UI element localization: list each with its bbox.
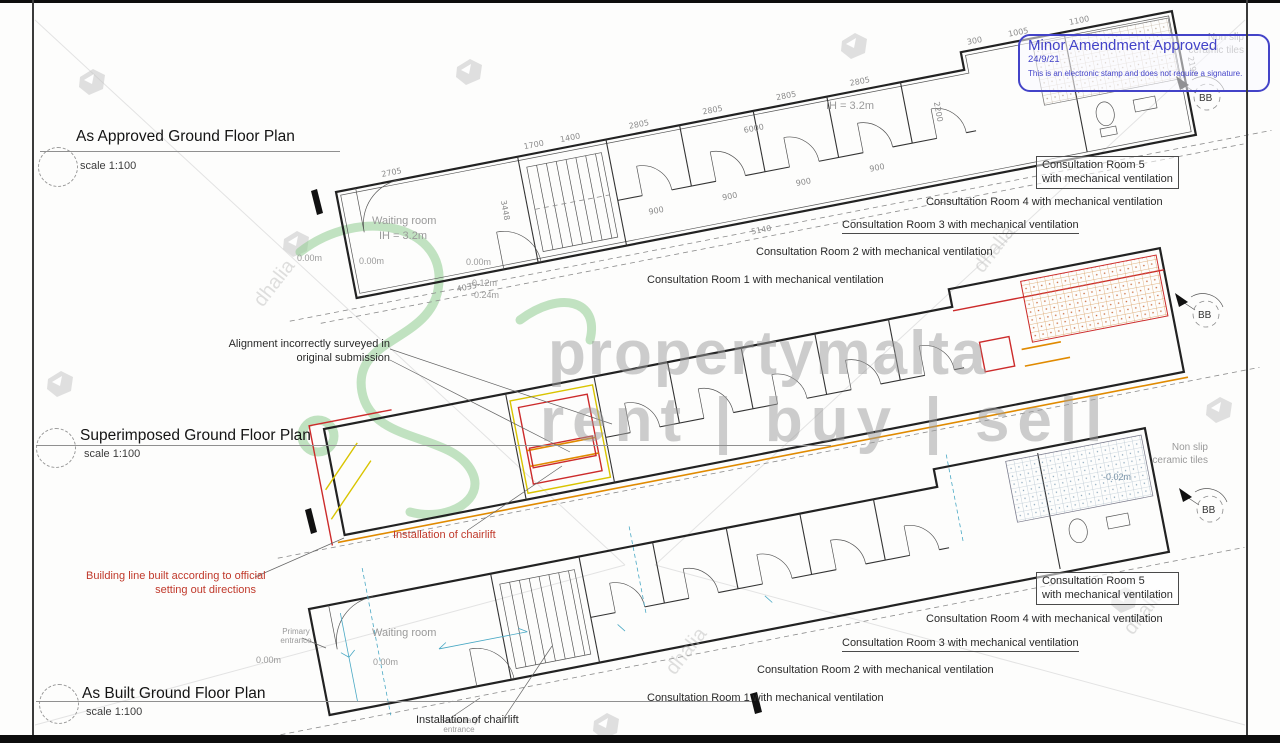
watermark-brand: propertymalta [548, 318, 987, 389]
room4-label-bottom: Consultation Room 4 with mechanical vent… [926, 612, 1163, 626]
building-line-note: Building line built according to officia… [86, 569, 256, 598]
section-label: BB [1202, 505, 1216, 516]
section-label: BB [1198, 310, 1212, 321]
level-label: 0.00m [359, 256, 384, 268]
section-label: BB [1199, 93, 1213, 104]
frame-left [32, 0, 34, 735]
superimposed-plan-title: Superimposed Ground Floor Plan [80, 426, 311, 446]
room5-label-bottom: Consultation Room 5 with mechanical vent… [1036, 572, 1179, 605]
level-label: 0.00m [466, 257, 491, 269]
frame-right [1246, 0, 1248, 735]
level-label: -0.12m [469, 278, 497, 290]
room5-label-top: Consultation Room 5 with mechanical vent… [1036, 156, 1179, 189]
room2-label-bottom: Consultation Room 2 with mechanical vent… [757, 663, 994, 677]
nonslip-line2: ceramic tiles [1118, 454, 1208, 467]
room5-line1: Consultation Room 5 [1042, 574, 1173, 588]
level-label: 0.00m [373, 657, 398, 669]
approved-plan-scale: scale 1:100 [80, 159, 136, 173]
room3-label-bottom: Consultation Room 3 with mechanical vent… [842, 636, 1079, 652]
level-label: 0.00m [256, 655, 281, 667]
superimposed-plan-scale: scale 1:100 [84, 447, 140, 461]
chairlift-note-superimposed: Installation of chairlift [393, 528, 496, 542]
alignment-note: Alignment incorrectly surveyed in origin… [200, 337, 390, 366]
primary-line1: Primary [274, 627, 318, 636]
title-marker-circle [38, 147, 78, 187]
title-marker-circle [39, 684, 79, 724]
as-built-plan-scale: scale 1:100 [86, 705, 142, 719]
primary-line2: entrance [274, 636, 318, 645]
section-marker-bb-bottom: BB [1179, 488, 1227, 522]
nonslip-line1: Non slip [1118, 441, 1208, 454]
chairlift-note-as-built: Installation of chairlift [416, 713, 519, 727]
room5-line2: with mechanical ventilation [1042, 172, 1173, 186]
room3-label-top: Consultation Room 3 with mechanical vent… [842, 218, 1079, 234]
approval-stamp: Minor Amendment Approved 24/9/21 This is… [1018, 34, 1270, 92]
building-line-line2: setting out directions [86, 583, 256, 597]
as-built-plan-title: As Built Ground Floor Plan [82, 684, 266, 704]
level-label: -0.02m [1103, 472, 1131, 484]
room5-line2: with mechanical ventilation [1042, 588, 1173, 602]
waiting-room-height: IH = 3.2m [379, 229, 427, 243]
drawing-sheet: 2705 1700 1400 2805 2805 2805 2805 6000 … [0, 0, 1280, 743]
alignment-note-line2: original submission [200, 351, 390, 365]
room2-label-top: Consultation Room 2 with mechanical vent… [756, 245, 993, 259]
primary-entrance-label: Primary entrance [274, 627, 318, 645]
room5-line1: Consultation Room 5 [1042, 158, 1173, 172]
alignment-note-line1: Alignment incorrectly surveyed in [200, 337, 390, 351]
title-line [40, 151, 340, 152]
title-marker-circle [36, 428, 76, 468]
waiting-room-label-top: Waiting room [372, 214, 436, 228]
stamp-note: This is an electronic stamp and does not… [1028, 70, 1260, 79]
level-label: 0.00m [297, 253, 322, 265]
stamp-date: 24/9/21 [1028, 55, 1260, 65]
frame-top [0, 0, 1280, 3]
level-label: -0.24m [471, 290, 499, 302]
room1-label-bottom: Consultation Room 1 with mechanical vent… [647, 691, 884, 705]
section-marker-bb-middle: BB [1175, 293, 1223, 327]
room4-label-top: Consultation Room 4 with mechanical vent… [926, 195, 1163, 209]
nonslip-label-middle: Non slip ceramic tiles [1118, 441, 1208, 467]
frame-bottom [0, 735, 1280, 743]
building-line-line1: Building line built according to officia… [86, 569, 256, 583]
approved-plan-title: As Approved Ground Floor Plan [76, 127, 295, 147]
stamp-title: Minor Amendment Approved [1028, 38, 1260, 55]
internal-height-label: IH = 3.2m [826, 99, 874, 113]
room1-label-top: Consultation Room 1 with mechanical vent… [647, 273, 884, 287]
waiting-room-label-bottom: Waiting room [372, 626, 436, 640]
